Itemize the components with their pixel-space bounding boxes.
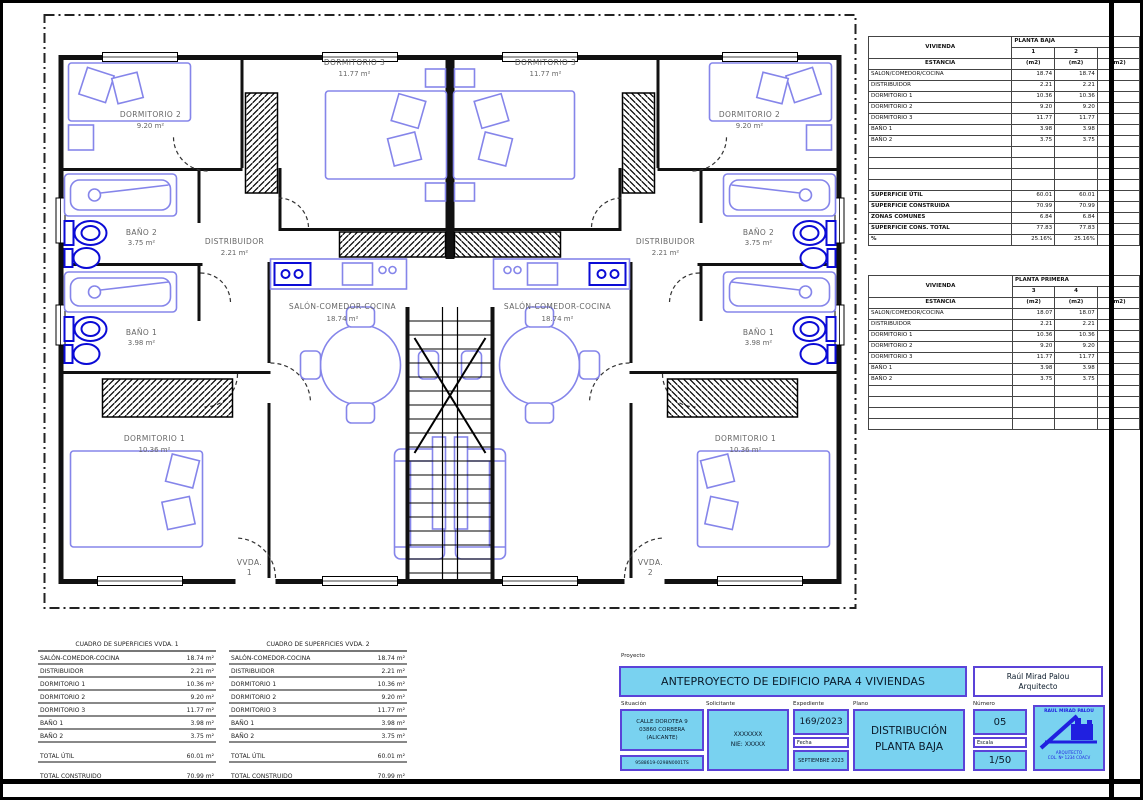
table-row: VIVIENDA PLANTA BAJA [869, 37, 1140, 48]
room-area: 11.77 m² [339, 70, 371, 78]
stamp-col: COL. Nº 1234 COACV [1048, 755, 1090, 760]
plano-label: Plano [853, 701, 868, 707]
room-area: 2.21 m² [221, 249, 249, 257]
list-item: BAÑO 23.75 m² [38, 730, 216, 743]
table-row: DORMITORIO 29.209.20 [869, 103, 1140, 114]
list-item: BAÑO 13.98 m² [229, 717, 407, 730]
architect-box: Raúl Mirad Palou Arquitecto [973, 666, 1103, 697]
table-row [869, 397, 1140, 408]
list-item: DORMITORIO 311.77 m² [38, 704, 216, 717]
escala-label-strip: Escala [973, 737, 1027, 748]
expediente-box: 169/2023 [793, 709, 849, 735]
table-row: ESTANCIA (m2) (m2) (m2) [869, 298, 1140, 309]
solicitante-label: Solicitante [706, 701, 735, 707]
table-row [869, 386, 1140, 397]
table-row [869, 419, 1140, 430]
table-row: BAÑO 23.753.75 [869, 136, 1140, 147]
room-area: 2.21 m² [652, 249, 680, 257]
table-row: ESTANCIA (m2) (m2) (m2) [869, 59, 1140, 70]
room-label: BAÑO 2 [743, 228, 774, 237]
unit-label: VVDA. [237, 558, 262, 567]
room-area: 11.77 m² [530, 70, 562, 78]
kitchen-counter-icon [271, 259, 407, 289]
proyecto-label: Proyecto [621, 653, 645, 659]
cabinet-icon [433, 437, 446, 529]
dining-table-icon [301, 307, 439, 423]
drawing-sheet: DORMITORIO 2 9.20 m² DORMITORIO 3 11.77 … [0, 0, 1143, 800]
table-row: SUPERFICIE CONSTRUIDA70.9970.99 [869, 202, 1140, 213]
list-item: DORMITORIO 311.77 m² [229, 704, 407, 717]
table-row [869, 169, 1140, 180]
list-item: DISTRIBUIDOR2.21 m² [38, 665, 216, 678]
room-area: 18.74 m² [542, 315, 574, 323]
room-area: 3.98 m² [128, 339, 156, 347]
floor-plan: DORMITORIO 2 9.20 m² DORMITORIO 3 11.77 … [41, 13, 859, 613]
project-title: ANTEPROYECTO DE EDIFICIO PARA 4 VIVIENDA… [661, 675, 925, 688]
room-label: BAÑO 1 [743, 328, 774, 337]
room-label: DORMITORIO 2 [719, 110, 780, 119]
table-row [869, 147, 1140, 158]
area-table-title: CUADRO DE SUPERFICIES VVDA. 2 [229, 640, 407, 652]
architect-name: Raúl Mirad Palou [1007, 672, 1069, 682]
list-item: BAÑO 13.98 m² [38, 717, 216, 730]
room-label: DISTRIBUIDOR [636, 237, 695, 246]
architect-role: Arquitecto [1019, 682, 1058, 692]
surface-table-planta-primera: VIVIENDA PLANTA PRIMERA 3 4 ESTANCIA (m2… [868, 275, 1140, 430]
table-row: SALON/COMEDOR/COCINA18.0718.07 [869, 309, 1140, 320]
table-row: DORMITORIO 311.7711.77 [869, 353, 1140, 364]
table-row: DORMITORIO 110.3610.36 [869, 331, 1140, 342]
stamp-graphic-icon [1039, 714, 1099, 750]
table-row [869, 408, 1140, 419]
list-item: SALÓN-COMEDOR-COCINA18.74 m² [229, 652, 407, 665]
room-label: DORMITORIO 2 [120, 110, 181, 119]
room-area: 10.36 m² [139, 446, 171, 454]
project-title-box: ANTEPROYECTO DE EDIFICIO PARA 4 VIVIENDA… [619, 666, 967, 697]
table-row: DORMITORIO 110.3610.36 [869, 92, 1140, 103]
fecha-box: SEPTIEMBRE 2023 [793, 750, 849, 771]
expediente-label: Expediente [793, 701, 824, 707]
numero-label: Número [973, 701, 995, 707]
escala-box: 1/50 [973, 750, 1027, 771]
unit-label: VVDA. [638, 558, 663, 567]
table-row: %25.16%25.16% [869, 235, 1140, 246]
table-row: BAÑO 23.753.75 [869, 375, 1140, 386]
table-row: SUPERFICIE ÚTIL60.0160.01 [869, 191, 1140, 202]
unit-label: 2 [648, 568, 653, 577]
room-label: DORMITORIO 3 [324, 58, 385, 67]
room-label: DORMITORIO 1 [124, 434, 185, 443]
sheet-border-right [1109, 3, 1114, 800]
area-table-title: CUADRO DE SUPERFICIES VVDA. 1 [38, 640, 216, 652]
table-row: BAÑO 13.983.98 [869, 364, 1140, 375]
table-row: SALON/COMEDOR/COCINA18.7418.74 [869, 70, 1140, 81]
room-label: BAÑO 1 [126, 328, 157, 337]
room-area: 9.20 m² [736, 122, 764, 130]
table-row: DORMITORIO 29.209.20 [869, 342, 1140, 353]
room-label: BAÑO 2 [126, 228, 157, 237]
ref-catastral-box: 9588619-0298N0001TS [620, 755, 704, 771]
surface-table-planta-baja: VIVIENDA PLANTA BAJA 1 2 ESTANCIA (m2) (… [868, 36, 1140, 246]
table-row: ZONAS COMUNES6.846.84 [869, 213, 1140, 224]
room-label: DISTRIBUIDOR [205, 237, 264, 246]
list-item: DORMITORIO 29.20 m² [229, 691, 407, 704]
room-area: 3.75 m² [128, 239, 156, 247]
sofa-icon [395, 437, 446, 559]
plano-box: DISTRIBUCIÓN PLANTA BAJA [853, 709, 965, 771]
list-item: DORMITORIO 29.20 m² [38, 691, 216, 704]
solicitante-box: XXXXXXX NIE: XXXXX [707, 709, 789, 771]
table-row: SUPERFICIE CONS. TOTAL77.8377.83 [869, 224, 1140, 235]
total-util-row: TOTAL ÚTIL60.01 m² [229, 750, 407, 763]
room-area: 3.75 m² [745, 239, 773, 247]
unit-label: 1 [247, 568, 252, 577]
room-area: 9.20 m² [137, 122, 165, 130]
room-label: DORMITORIO 1 [715, 434, 776, 443]
list-item: SALÓN-COMEDOR-COCINA18.74 m² [38, 652, 216, 665]
list-item: BAÑO 23.75 m² [229, 730, 407, 743]
table-row [869, 158, 1140, 169]
room-area: 18.74 m² [327, 315, 359, 323]
left-unit-geometry [56, 53, 450, 586]
architect-stamp: RAUL MIRAD PALOU ARQUITECTO COL. Nº 1234… [1033, 705, 1105, 771]
table-row: BAÑO 13.983.98 [869, 125, 1140, 136]
room-label: SALÓN-COMEDOR-COCINA [289, 302, 397, 311]
total-util-row: TOTAL ÚTIL60.01 m² [38, 750, 216, 763]
situacion-box: CALLE DOROTEA 9 03860 CORBERA (ALICANTE) [620, 709, 704, 751]
table-row [869, 180, 1140, 191]
table-row: VIVIENDA PLANTA PRIMERA [869, 276, 1140, 287]
table-row: DISTRIBUIDOR2.212.21 [869, 81, 1140, 92]
room-label: SALÓN-COMEDOR-COCINA [504, 302, 612, 311]
area-table-vvda2: CUADRO DE SUPERFICIES VVDA. 2 SALÓN-COME… [229, 640, 407, 783]
situacion-label: Situación [621, 701, 646, 707]
right-unit-geometry [450, 53, 844, 586]
room-area: 10.36 m² [730, 446, 762, 454]
table-row: DORMITORIO 311.7711.77 [869, 114, 1140, 125]
room-label: DORMITORIO 3 [515, 58, 576, 67]
table-row: DISTRIBUIDOR2.212.21 [869, 320, 1140, 331]
list-item: DORMITORIO 110.36 m² [38, 678, 216, 691]
list-item: DORMITORIO 110.36 m² [229, 678, 407, 691]
room-area: 3.98 m² [745, 339, 773, 347]
list-item: DISTRIBUIDOR2.21 m² [229, 665, 407, 678]
sheet-border-bottom [3, 779, 1143, 784]
numero-box: 05 [973, 709, 1027, 735]
fecha-label-strip: Fecha [793, 737, 849, 748]
area-table-vvda1: CUADRO DE SUPERFICIES VVDA. 1 SALÓN-COME… [38, 640, 216, 783]
